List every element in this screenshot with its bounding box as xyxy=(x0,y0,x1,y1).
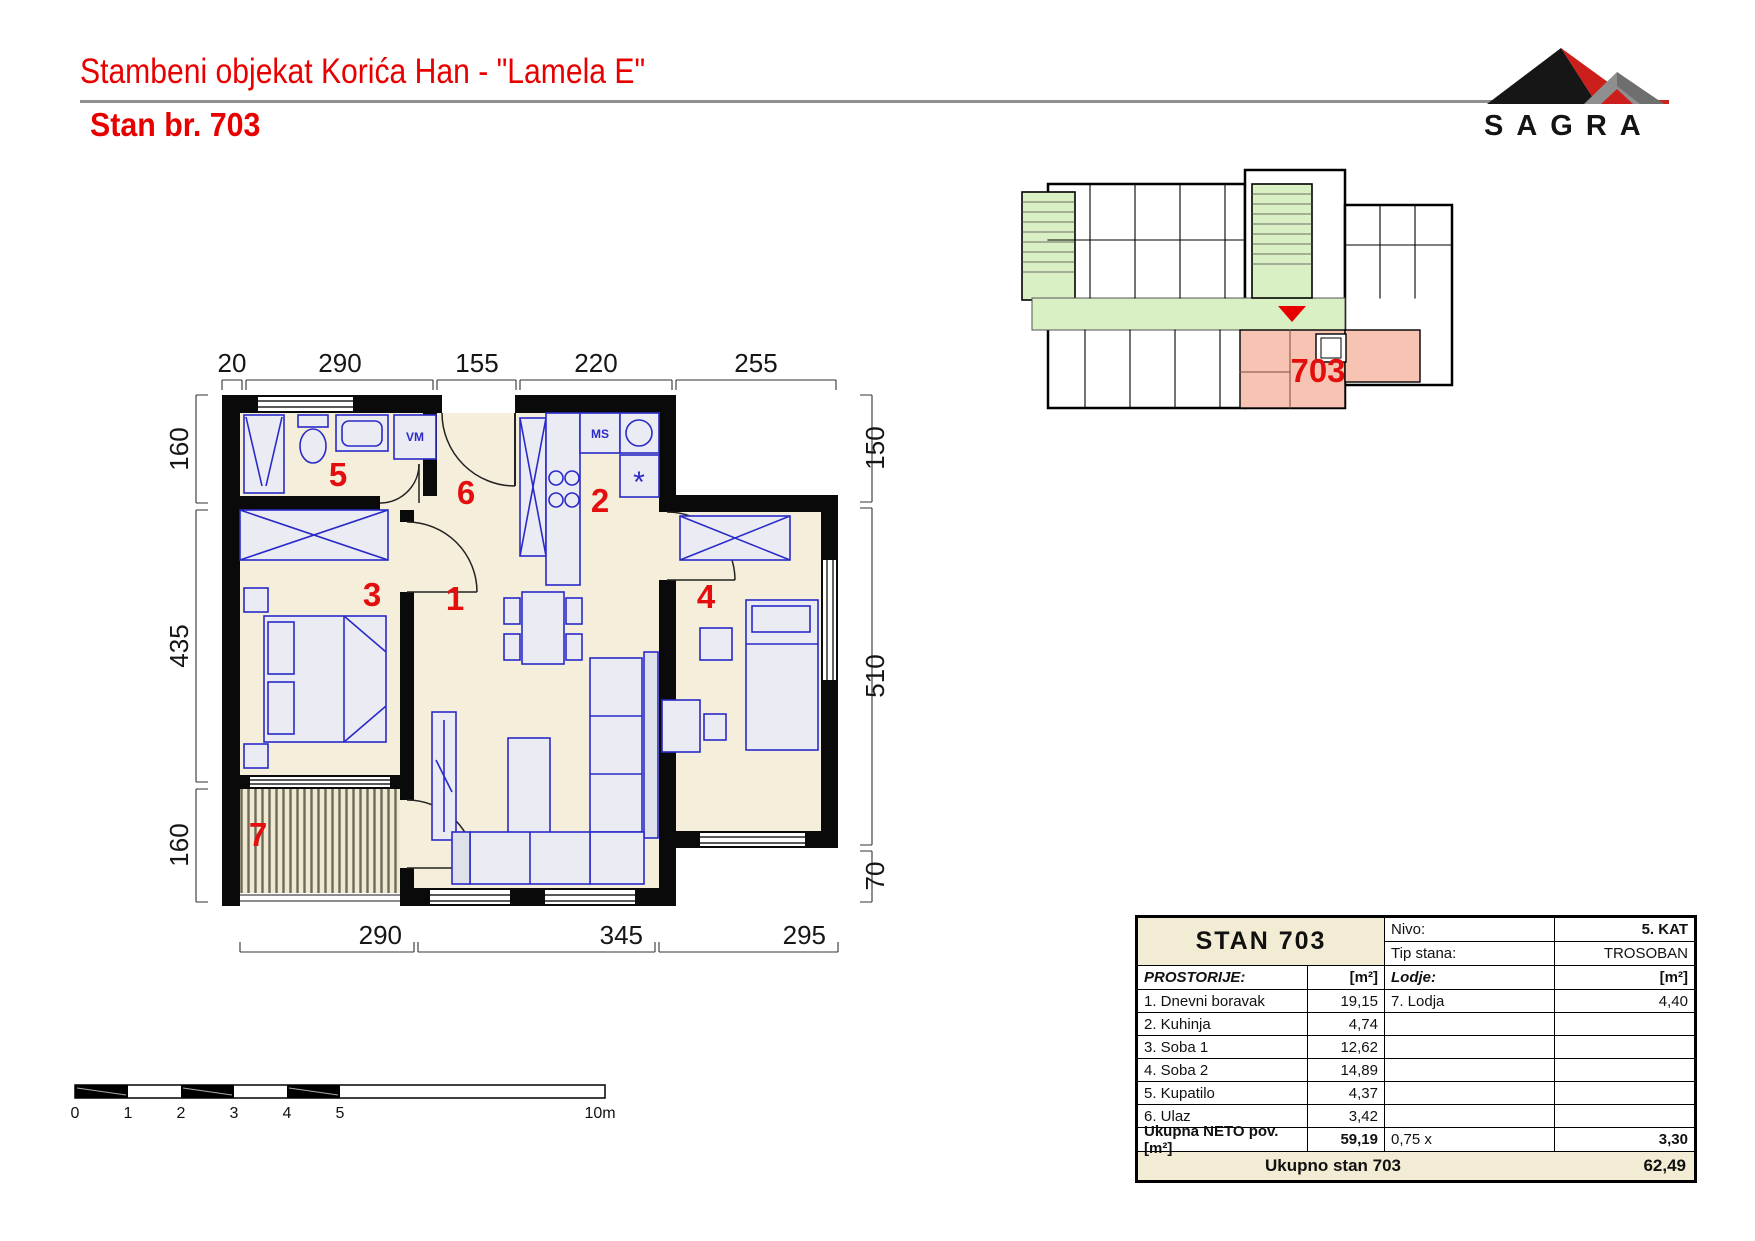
room-name: 5. Kupatilo xyxy=(1138,1082,1308,1105)
table-row: 4. Soba 2 14,89 xyxy=(1138,1059,1694,1082)
empty-cell xyxy=(1385,1082,1555,1105)
room-area: 12,62 xyxy=(1308,1036,1385,1059)
double-bed xyxy=(264,616,386,742)
table-row: 2. Kuhinja 4,74 xyxy=(1138,1013,1694,1036)
stairwell-left xyxy=(1022,192,1075,300)
room-area: 14,89 xyxy=(1308,1059,1385,1082)
stairwell-center xyxy=(1252,184,1312,298)
empty-cell xyxy=(1555,1036,1694,1059)
dim-top-1: 290 xyxy=(318,348,361,378)
room-area: 4,74 xyxy=(1308,1013,1385,1036)
toilet xyxy=(298,415,328,463)
room-name: 3. Soba 1 xyxy=(1138,1036,1308,1059)
side-table xyxy=(700,628,732,660)
factor-label: 0,75 x xyxy=(1385,1128,1555,1152)
lodje-unit: [m²] xyxy=(1555,966,1694,990)
dim-bottom-0: 290 xyxy=(359,920,402,950)
wardrobe-bedroom2 xyxy=(680,516,790,560)
fridge-asterisk: * xyxy=(633,466,645,499)
room-number-loggia: 7 xyxy=(249,816,267,853)
room-number-living: 1 xyxy=(446,580,464,617)
nightstand xyxy=(244,744,268,768)
shaft-cabinet xyxy=(520,418,546,556)
empty-cell xyxy=(1555,1059,1694,1082)
floor-plan: VM MS * 1 2 3 4 5 6 7 xyxy=(164,348,890,952)
tv-cabinet xyxy=(432,712,456,840)
room-number-bedroom2: 4 xyxy=(697,578,716,615)
empty-cell xyxy=(1385,1105,1555,1128)
kitchen-cabinet-label: MS xyxy=(591,427,609,441)
level-value: 5. KAT xyxy=(1555,918,1694,942)
scale-label-10m: 10m xyxy=(584,1105,615,1122)
dim-left-2: 160 xyxy=(164,823,194,866)
empty-cell xyxy=(1555,1013,1694,1036)
site-plan: 703 xyxy=(1022,170,1452,408)
wardrobe-bedroom1 xyxy=(240,510,388,560)
nightstand xyxy=(244,588,268,612)
rooms-header: PROSTORIJE: xyxy=(1138,966,1308,990)
room-name: 2. Kuhinja xyxy=(1138,1013,1308,1036)
dim-bottom-1: 345 xyxy=(600,920,643,950)
dim-right-2: 70 xyxy=(860,862,890,891)
site-plan-unit-number: 703 xyxy=(1290,352,1345,389)
factor-value: 3,30 xyxy=(1555,1128,1694,1152)
lodja-area: 4,40 xyxy=(1555,990,1694,1013)
table-title: STAN 703 xyxy=(1138,918,1385,966)
shower xyxy=(244,415,284,493)
washbasin xyxy=(336,415,388,451)
dim-right-1: 510 xyxy=(860,654,890,697)
neto-label: Ukupna NETO pov. [m²] xyxy=(1138,1128,1308,1152)
scale-label-1: 1 xyxy=(124,1105,133,1122)
dim-left-1: 435 xyxy=(164,624,194,667)
scale-label-3: 3 xyxy=(230,1105,239,1122)
dim-left-0: 160 xyxy=(164,427,194,470)
room-area: 3,42 xyxy=(1308,1105,1385,1128)
washing-machine-label: VM xyxy=(406,430,424,444)
single-bed xyxy=(746,600,818,750)
scale-bar: 0 1 2 3 4 5 10m xyxy=(71,1085,616,1122)
lodja-name: 7. Lodja xyxy=(1385,990,1555,1013)
level-label: Nivo: xyxy=(1385,918,1555,942)
empty-cell xyxy=(1555,1105,1694,1128)
sagra-logo-icon xyxy=(1487,48,1664,104)
rooms-unit: [m²] xyxy=(1308,966,1385,990)
type-value: TROSOBAN xyxy=(1555,942,1694,966)
entry-opening xyxy=(442,395,515,413)
dim-right-0: 150 xyxy=(860,426,890,469)
empty-cell xyxy=(1385,1059,1555,1082)
room-number-bedroom1: 3 xyxy=(363,576,381,613)
total-row: Ukupno stan 703 62,49 xyxy=(1138,1152,1694,1180)
scale-label-5: 5 xyxy=(336,1105,345,1122)
room-name: 1. Dnevni boravak xyxy=(1138,990,1308,1013)
apartment-data-table: STAN 703 Nivo: 5. KAT Tip stana: TROSOBA… xyxy=(1135,915,1697,1183)
room-name: 4. Soba 2 xyxy=(1138,1059,1308,1082)
scale-label-2: 2 xyxy=(177,1105,186,1122)
dim-top-0: 20 xyxy=(218,348,247,378)
dim-bottom-2: 295 xyxy=(783,920,826,950)
dim-top-3: 220 xyxy=(574,348,617,378)
room-area: 4,37 xyxy=(1308,1082,1385,1105)
empty-cell xyxy=(1555,1082,1694,1105)
dim-top-2: 155 xyxy=(455,348,498,378)
room-area: 19,15 xyxy=(1308,990,1385,1013)
empty-cell xyxy=(1385,1036,1555,1059)
total-label: Ukupno stan 703 xyxy=(1138,1152,1528,1180)
table-row: 3. Soba 1 12,62 xyxy=(1138,1036,1694,1059)
coffee-table xyxy=(508,738,550,838)
table-row: 1. Dnevni boravak 19,15 7. Lodja 4,40 xyxy=(1138,990,1694,1013)
lodje-header: Lodje: xyxy=(1385,966,1555,990)
neto-value: 59,19 xyxy=(1308,1128,1385,1152)
dim-top-4: 255 xyxy=(734,348,777,378)
total-value: 62,49 xyxy=(1528,1152,1694,1180)
room-number-entry: 6 xyxy=(457,474,475,511)
room-number-bathroom: 5 xyxy=(329,456,347,493)
type-label: Tip stana: xyxy=(1385,942,1555,966)
scale-label-4: 4 xyxy=(283,1105,292,1122)
table-row: 5. Kupatilo 4,37 xyxy=(1138,1082,1694,1105)
room-number-kitchen: 2 xyxy=(591,482,609,519)
scale-label-0: 0 xyxy=(71,1105,80,1122)
empty-cell xyxy=(1385,1013,1555,1036)
neto-row: Ukupna NETO pov. [m²] 59,19 0,75 x 3,30 xyxy=(1138,1128,1694,1152)
